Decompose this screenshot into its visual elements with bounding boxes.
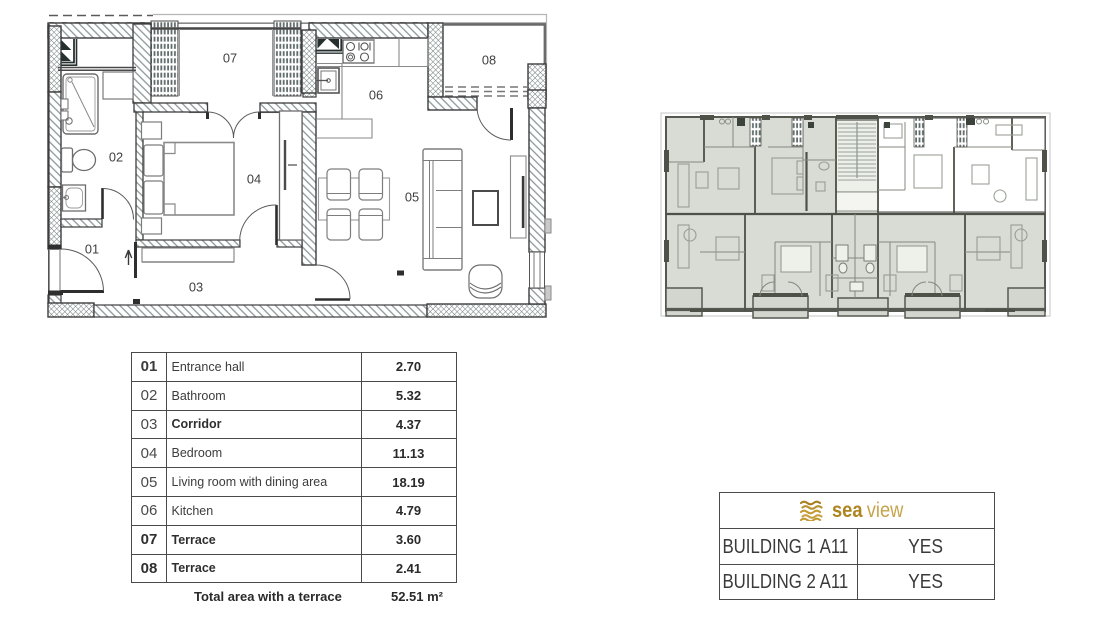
svg-text:02: 02 bbox=[109, 150, 123, 165]
svg-text:06: 06 bbox=[369, 88, 383, 103]
svg-text:07: 07 bbox=[223, 51, 237, 66]
svg-text:04: 04 bbox=[247, 172, 261, 187]
svg-text:03: 03 bbox=[189, 280, 203, 295]
svg-text:01: 01 bbox=[85, 242, 99, 257]
svg-text:08: 08 bbox=[482, 53, 496, 68]
svg-text:05: 05 bbox=[405, 190, 419, 205]
